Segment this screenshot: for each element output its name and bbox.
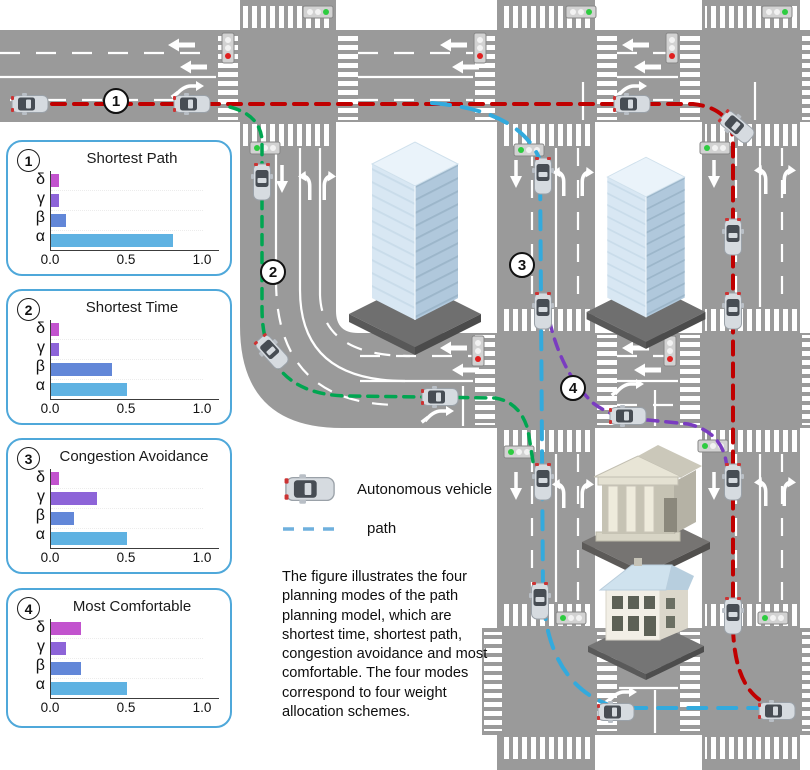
chart-panel-1: 1 Shortest Path δ γ β α 0.0 0.5 1.0: [6, 140, 232, 276]
car-icon: [722, 292, 744, 329]
x-tick: 0.5: [117, 550, 136, 565]
x-tick: 1.0: [193, 550, 212, 565]
chart-panel-3: 3 Congestion Avoidance δ γ β α 0.0 0.5 1…: [6, 438, 232, 574]
category-label: α: [26, 676, 50, 695]
figure-caption: The figure illustrates the four planning…: [282, 568, 504, 722]
bar-delta: [51, 622, 81, 635]
x-axis-ticks: 0.0 0.5 1.0: [50, 699, 218, 715]
bar-alpha: [51, 532, 127, 545]
panel-number-badge: 4: [17, 597, 40, 620]
category-label: δ: [26, 469, 50, 488]
bar-beta: [51, 512, 74, 525]
x-tick: 0.5: [117, 401, 136, 416]
route-marker-1: 1: [103, 88, 129, 114]
bar-row: [51, 489, 203, 509]
office-tower-1: [349, 142, 481, 355]
bar-gamma: [51, 343, 59, 356]
bar-row: [51, 679, 203, 698]
bar-beta: [51, 662, 81, 675]
bar-row: [51, 509, 203, 529]
route-marker-3: 3: [509, 252, 535, 278]
bar-row: [51, 659, 203, 679]
bar-delta: [51, 174, 59, 187]
car-icon: [613, 93, 650, 115]
bar-row: [51, 529, 203, 548]
bar-row: [51, 231, 203, 250]
category-label: β: [26, 358, 50, 377]
bar-beta: [51, 214, 66, 227]
path-dash-icon: [281, 523, 345, 535]
autonomous-vehicle-icon: [281, 474, 345, 504]
x-axis-ticks: 0.0 0.5 1.0: [50, 251, 218, 267]
chart-panel-2: 2 Shortest Time δ γ β α 0.0 0.5 1.0: [6, 289, 232, 425]
category-labels: δ γ β α: [26, 320, 50, 400]
bar-row: [51, 320, 203, 340]
chart-title: Shortest Path: [42, 150, 222, 168]
x-axis-ticks: 0.0 0.5 1.0: [50, 400, 218, 416]
car-icon: [421, 386, 458, 408]
panel-number-badge: 1: [17, 149, 40, 172]
x-tick: 1.0: [193, 252, 212, 267]
car-icon: [532, 157, 554, 194]
category-label: α: [26, 228, 50, 247]
bar-row: [51, 211, 203, 231]
bar-row: [51, 191, 203, 211]
chart-panel-4: 4 Most Comfortable δ γ β α 0.0 0.5 1.0: [6, 588, 232, 728]
category-label: δ: [26, 619, 50, 638]
category-label: β: [26, 507, 50, 526]
legend-path-label: path: [367, 520, 396, 537]
x-axis-ticks: 0.0 0.5 1.0: [50, 549, 218, 565]
bar-chart: δ γ β α: [26, 171, 222, 251]
category-labels: δ γ β α: [26, 469, 50, 549]
category-label: β: [26, 209, 50, 228]
category-label: α: [26, 377, 50, 396]
bar-gamma: [51, 642, 66, 655]
legend-vehicle-label: Autonomous vehicle: [357, 481, 492, 498]
office-tower-2: [587, 157, 706, 349]
bar-chart: δ γ β α: [26, 320, 222, 400]
bar-delta: [51, 323, 59, 336]
x-tick: 0.0: [41, 550, 60, 565]
category-label: γ: [26, 339, 50, 358]
bar-alpha: [51, 682, 127, 695]
route-marker-4: 4: [560, 375, 586, 401]
chart-title: Most Comfortable: [42, 598, 222, 616]
bank-building: [582, 445, 710, 580]
x-tick: 0.0: [41, 401, 60, 416]
category-label: δ: [26, 171, 50, 190]
bar-alpha: [51, 383, 127, 396]
x-tick: 1.0: [193, 401, 212, 416]
bar-delta: [51, 472, 59, 485]
bar-row: [51, 639, 203, 659]
bar-gamma: [51, 194, 59, 207]
legend-path-row: path: [281, 520, 396, 537]
bar-row: [51, 619, 203, 639]
panel-number-badge: 3: [17, 447, 40, 470]
car-icon: [532, 463, 554, 500]
bar-row: [51, 360, 203, 380]
category-label: α: [26, 526, 50, 545]
legend-vehicle-row: Autonomous vehicle: [281, 474, 492, 504]
category-label: γ: [26, 190, 50, 209]
route-marker-2: 2: [260, 259, 286, 285]
category-labels: δ γ β α: [26, 171, 50, 251]
bar-chart: δ γ β α: [26, 469, 222, 549]
x-tick: 0.0: [41, 700, 60, 715]
panel-number-badge: 2: [17, 298, 40, 321]
car-icon: [173, 93, 210, 115]
car-icon: [11, 93, 48, 115]
bar-row: [51, 340, 203, 360]
category-label: β: [26, 657, 50, 676]
bar-gamma: [51, 492, 97, 505]
car-icon: [722, 463, 744, 500]
category-labels: δ γ β α: [26, 619, 50, 699]
plot-area: [50, 171, 219, 251]
plot-area: [50, 619, 219, 699]
bar-beta: [51, 363, 112, 376]
bar-chart: δ γ β α: [26, 619, 222, 699]
car-icon: [251, 163, 273, 200]
x-tick: 0.5: [117, 700, 136, 715]
plot-area: [50, 469, 219, 549]
car-icon: [758, 700, 795, 722]
x-tick: 0.0: [41, 252, 60, 267]
category-label: γ: [26, 488, 50, 507]
chart-title: Shortest Time: [42, 299, 222, 317]
bar-row: [51, 171, 203, 191]
bar-alpha: [51, 234, 173, 247]
car-icon: [529, 582, 551, 619]
chart-title: Congestion Avoidance: [46, 448, 222, 466]
category-label: γ: [26, 638, 50, 657]
plot-area: [50, 320, 219, 400]
car-icon: [722, 218, 744, 255]
x-tick: 0.5: [117, 252, 136, 267]
bar-row: [51, 380, 203, 399]
car-icon: [609, 405, 646, 427]
category-label: δ: [26, 320, 50, 339]
x-tick: 1.0: [193, 700, 212, 715]
figure-canvas: 1 2 3 4 1 Shortest Path δ γ β α 0.0 0.5 …: [0, 0, 810, 770]
car-icon: [722, 597, 744, 634]
car-icon: [532, 292, 554, 329]
car-icon: [597, 701, 634, 723]
bar-row: [51, 469, 203, 489]
